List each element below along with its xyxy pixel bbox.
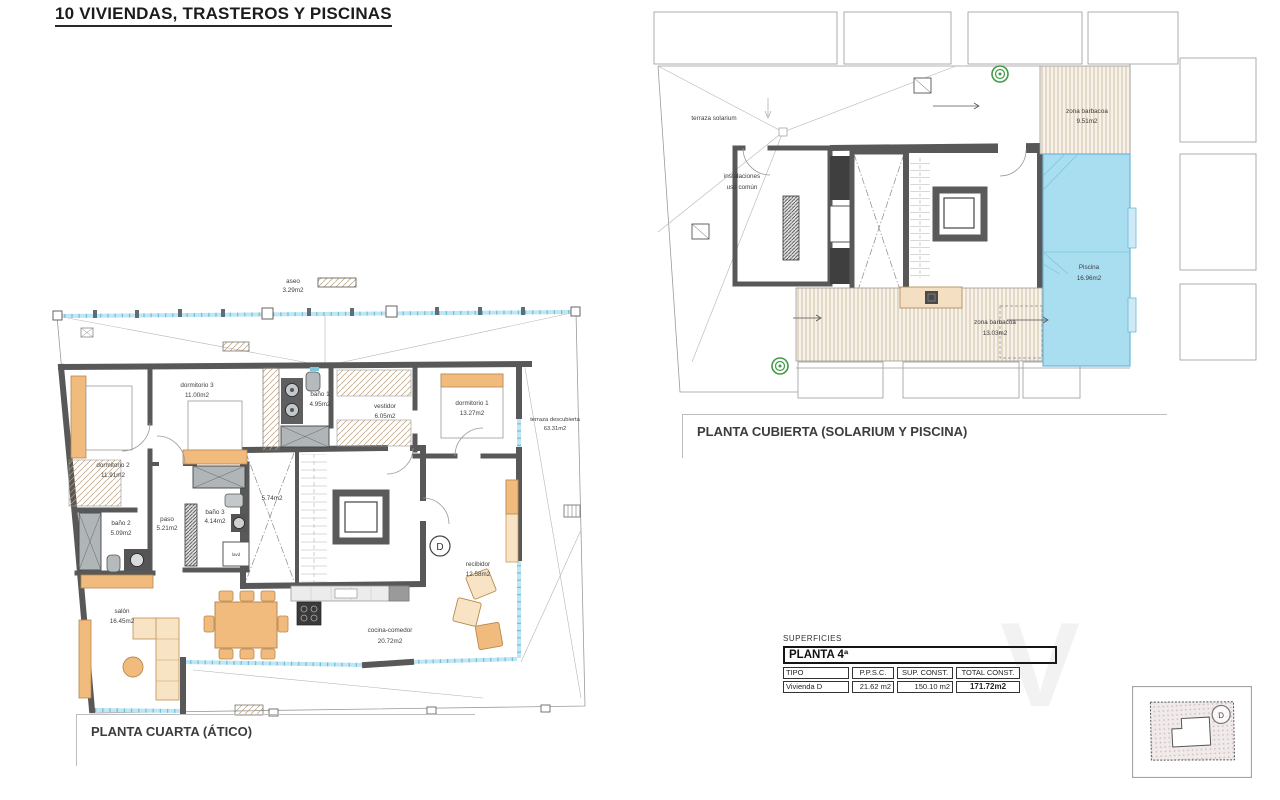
- unit-letter: D: [1218, 711, 1224, 720]
- label-cocina-comedor: cocina-comedor 20.72m2: [368, 627, 413, 645]
- label-paso: paso 5.21m2: [156, 516, 178, 532]
- svg-text:terraza descubierta: terraza descubierta: [530, 417, 580, 423]
- svg-text:baño 1: baño 1: [310, 391, 330, 398]
- round-table: [123, 657, 143, 677]
- unit-letter: D: [436, 542, 443, 553]
- tv-unit: [79, 620, 91, 698]
- svg-text:aseo: aseo: [286, 278, 300, 285]
- svg-text:recibidor: recibidor: [466, 561, 490, 568]
- svg-text:baño 2: baño 2: [111, 520, 131, 527]
- caption-text: PLANTA CUARTA (ÁTICO): [91, 724, 252, 739]
- label-patio: 5.74m2: [261, 495, 283, 502]
- table-row: Vivienda D 21.62 m2 150.10 m2 171.72m2: [783, 681, 1057, 693]
- col-header-ppsc: P.P.S.C.: [852, 667, 894, 679]
- col-header-tipo: TIPO: [783, 667, 849, 679]
- label-instalaciones: instalaciones uso común: [724, 173, 760, 191]
- drain-icon: [772, 358, 788, 374]
- svg-text:salón: salón: [114, 608, 130, 615]
- caption-planta-cubierta: PLANTA CUBIERTA (SOLARIUM Y PISCINA): [682, 414, 1167, 458]
- dining-table: [204, 591, 288, 659]
- stair-core: [246, 453, 386, 582]
- svg-text:baño 3: baño 3: [205, 509, 225, 516]
- svg-text:11.00m2: 11.00m2: [185, 392, 210, 399]
- drain-icon: [992, 66, 1008, 82]
- svg-text:5.21m2: 5.21m2: [156, 525, 178, 532]
- summary-table: TIPO P.P.S.C. SUP. CONST. TOTAL CONST. V…: [783, 667, 1057, 693]
- label-terraza-descubierta: terraza descubierta 63.31m2: [530, 417, 580, 432]
- svg-text:5.09m2: 5.09m2: [110, 530, 132, 537]
- col-header-sup: SUP. CONST.: [897, 667, 953, 679]
- svg-text:dormitorio 1: dormitorio 1: [455, 400, 489, 407]
- cell-tipo: Vivienda D: [783, 681, 849, 693]
- label-aseo: aseo 3.29m2: [282, 278, 304, 294]
- label-vestidor: vestidor 6.05m2: [374, 403, 396, 420]
- armchair: [452, 597, 481, 626]
- cell-sup: 150.10 m2: [897, 681, 953, 693]
- table-header-row: TIPO P.P.S.C. SUP. CONST. TOTAL CONST.: [783, 667, 1057, 679]
- svg-text:4.14m2: 4.14m2: [204, 518, 226, 525]
- summary-floor-title: PLANTA 4ª: [783, 646, 1057, 664]
- svg-text:13.03m2: 13.03m2: [983, 330, 1008, 337]
- svg-text:20.72m2: 20.72m2: [378, 638, 403, 645]
- page-title: 10 VIVIENDAS, TRASTEROS Y PISCINAS: [55, 4, 392, 27]
- pool: [1043, 154, 1130, 366]
- svg-text:terraza solarium: terraza solarium: [691, 115, 736, 122]
- svg-text:4.95m2: 4.95m2: [309, 401, 331, 408]
- bbq-grill: [925, 291, 938, 304]
- svg-text:11.91m2: 11.91m2: [101, 472, 126, 479]
- svg-text:instalaciones: instalaciones: [724, 173, 760, 180]
- plan-sheet: 10 VIVIENDAS, TRASTEROS Y PISCINAS: [0, 0, 1280, 800]
- label-lavd: lavd: [232, 552, 241, 557]
- caption-text: PLANTA CUBIERTA (SOLARIUM Y PISCINA): [697, 424, 967, 439]
- svg-text:13.27m2: 13.27m2: [460, 410, 485, 417]
- svg-text:12.58m2: 12.58m2: [466, 571, 491, 578]
- key-plan: D: [1132, 686, 1252, 778]
- svg-text:dormitorio 3: dormitorio 3: [180, 382, 214, 389]
- caption-planta-cuarta: PLANTA CUARTA (ÁTICO): [76, 714, 475, 766]
- stove: [297, 602, 321, 625]
- label-bano-3: baño 3 4.14m2: [204, 509, 226, 525]
- sofa: [133, 618, 179, 700]
- cell-ppsc: 21.62 m2: [852, 681, 894, 693]
- svg-text:dormitorio 2: dormitorio 2: [96, 462, 130, 469]
- label-terraza-solarium: terraza solarium: [691, 115, 736, 122]
- unit-d-marker: D: [430, 536, 450, 556]
- svg-text:63.31m2: 63.31m2: [544, 426, 567, 432]
- label-dormitorio-3: dormitorio 3 11.00m2: [180, 382, 214, 399]
- svg-text:16.45m2: 16.45m2: [110, 618, 135, 625]
- svg-text:Piscina: Piscina: [1079, 264, 1100, 271]
- svg-text:9.51m2: 9.51m2: [1076, 118, 1098, 125]
- label-bano-2: baño 2 5.09m2: [110, 520, 132, 537]
- svg-text:3.29m2: 3.29m2: [282, 287, 304, 294]
- label-bano-1: baño 1 4.95m2: [309, 391, 331, 408]
- surface-summary: SUPERFICIES PLANTA 4ª TIPO P.P.S.C. SUP.…: [783, 634, 1057, 695]
- col-header-total: TOTAL CONST.: [956, 667, 1020, 679]
- svg-text:16.96m2: 16.96m2: [1077, 275, 1102, 282]
- svg-text:5.74m2: 5.74m2: [261, 495, 283, 502]
- armchair: [475, 622, 503, 650]
- svg-text:cocina-comedor: cocina-comedor: [368, 627, 413, 634]
- svg-text:uso común: uso común: [727, 184, 758, 191]
- svg-text:zona barbacoa: zona barbacoa: [974, 319, 1016, 326]
- floor-plan-planta-cuarta: D aseo 3.29m2 dormitorio 3 11.00m2 baño …: [35, 258, 610, 758]
- cell-total: 171.72m2: [956, 681, 1020, 693]
- svg-text:paso: paso: [160, 516, 174, 523]
- svg-text:6.05m2: 6.05m2: [374, 413, 396, 420]
- svg-text:zona barbacoa: zona barbacoa: [1066, 108, 1108, 115]
- summary-heading: SUPERFICIES: [783, 634, 1057, 643]
- svg-text:vestidor: vestidor: [374, 403, 396, 410]
- label-salon: salón 16.45m2: [110, 608, 135, 625]
- floor-plan-planta-cubierta: terraza solarium instalaciones uso común…: [648, 6, 1273, 418]
- keyplan-unit-d-marker: D: [1212, 705, 1231, 724]
